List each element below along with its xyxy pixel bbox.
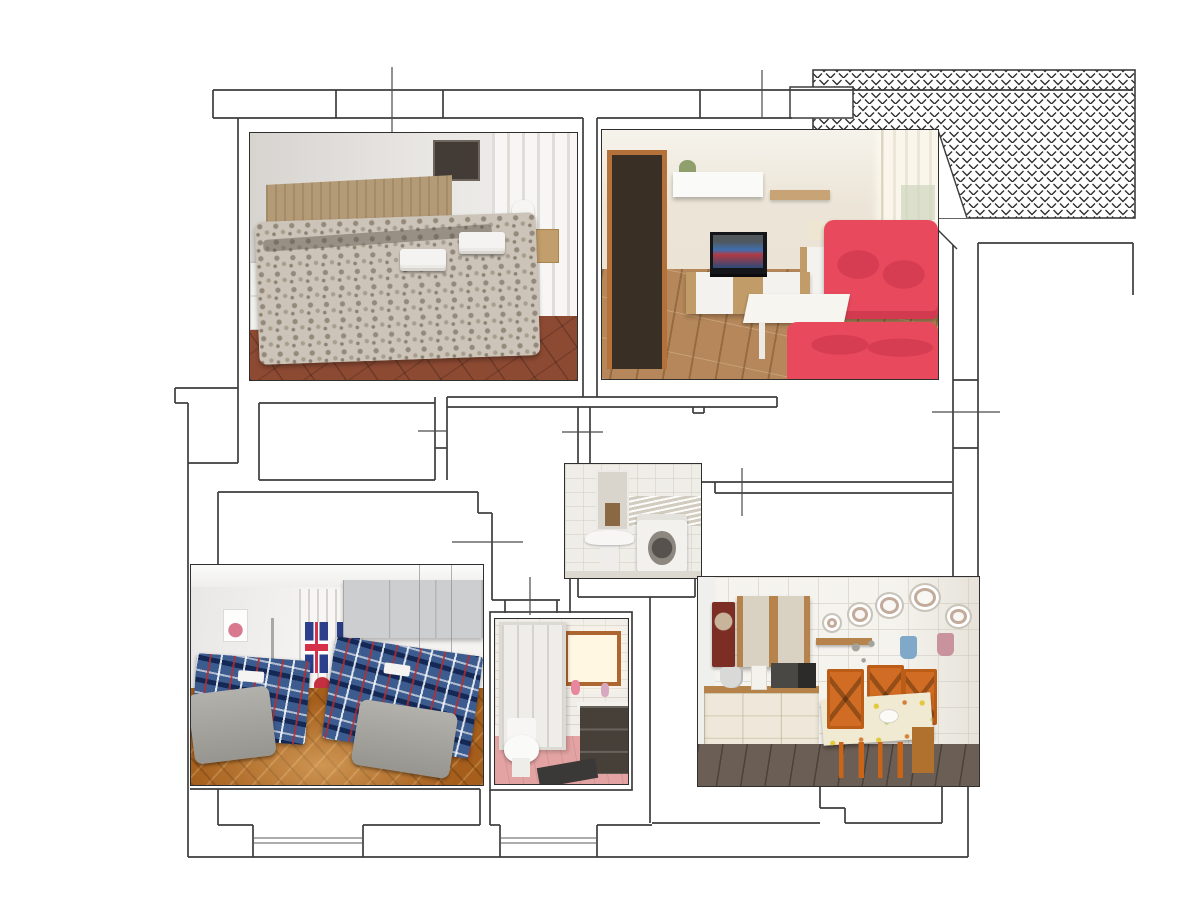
floor-plan-collage: [0, 0, 1200, 900]
bedroom-towels-2: [459, 232, 505, 254]
photo-double-bedroom: [250, 133, 577, 380]
photo-kitchen: [698, 577, 979, 786]
twin-bed-footboard-left: [191, 686, 277, 766]
bathroom-mirror: [596, 470, 629, 531]
decorative-plate: [909, 583, 941, 612]
photo-twin-bedroom: [191, 565, 483, 785]
orange-chair-back: [827, 669, 864, 729]
bedroom-towels-1: [400, 249, 446, 271]
living-coffee-table-leg: [759, 322, 765, 360]
shower-pink-accessory: [601, 683, 609, 696]
kitchen-wall-cabinet: [737, 596, 810, 667]
photo-shower-room: [495, 619, 628, 784]
twin-bed-towel-1: [237, 670, 264, 683]
terrace-wall-band: [790, 87, 853, 118]
twin-wall-picture: [223, 609, 248, 642]
washing-machine: [637, 514, 687, 573]
orange-chair-legs: [839, 742, 864, 778]
dining-table-leg: [912, 727, 934, 773]
shower-pink-towel: [571, 680, 580, 695]
living-wood-shelf: [770, 190, 830, 200]
table-plate: [878, 708, 898, 723]
living-tv-screen: [713, 235, 763, 268]
kettle: [720, 667, 742, 688]
window-symbols: [253, 838, 597, 843]
bathroom-sink: [585, 530, 634, 545]
terrace-diagonal-wall: [938, 230, 957, 249]
shower-window: [564, 631, 621, 687]
orange-chair-legs: [878, 742, 903, 778]
washing-machine-door: [648, 531, 676, 565]
cuckoo-clock: [712, 602, 734, 667]
living-tv: [710, 232, 767, 277]
living-coffee-table-top: [743, 294, 850, 323]
photo-living-room: [602, 130, 938, 379]
living-window-greenery: [901, 185, 935, 220]
living-doorway: [607, 150, 667, 369]
decorative-plate: [945, 604, 971, 629]
photo-bathroom-laundry: [565, 464, 701, 578]
bathroom-mirror-reflection: [605, 503, 619, 526]
microwave: [771, 663, 816, 688]
kitchen-wall-decor-pink: [937, 633, 954, 656]
kitchen-wall-decor-blue: [900, 636, 917, 659]
toilet-base: [512, 758, 529, 778]
living-wall-cabinet: [673, 172, 764, 197]
living-red-sofa-second: [787, 322, 938, 379]
kitchen-jar: [751, 665, 767, 690]
decorative-plate: [875, 592, 904, 619]
bathroom-floor: [565, 571, 701, 578]
